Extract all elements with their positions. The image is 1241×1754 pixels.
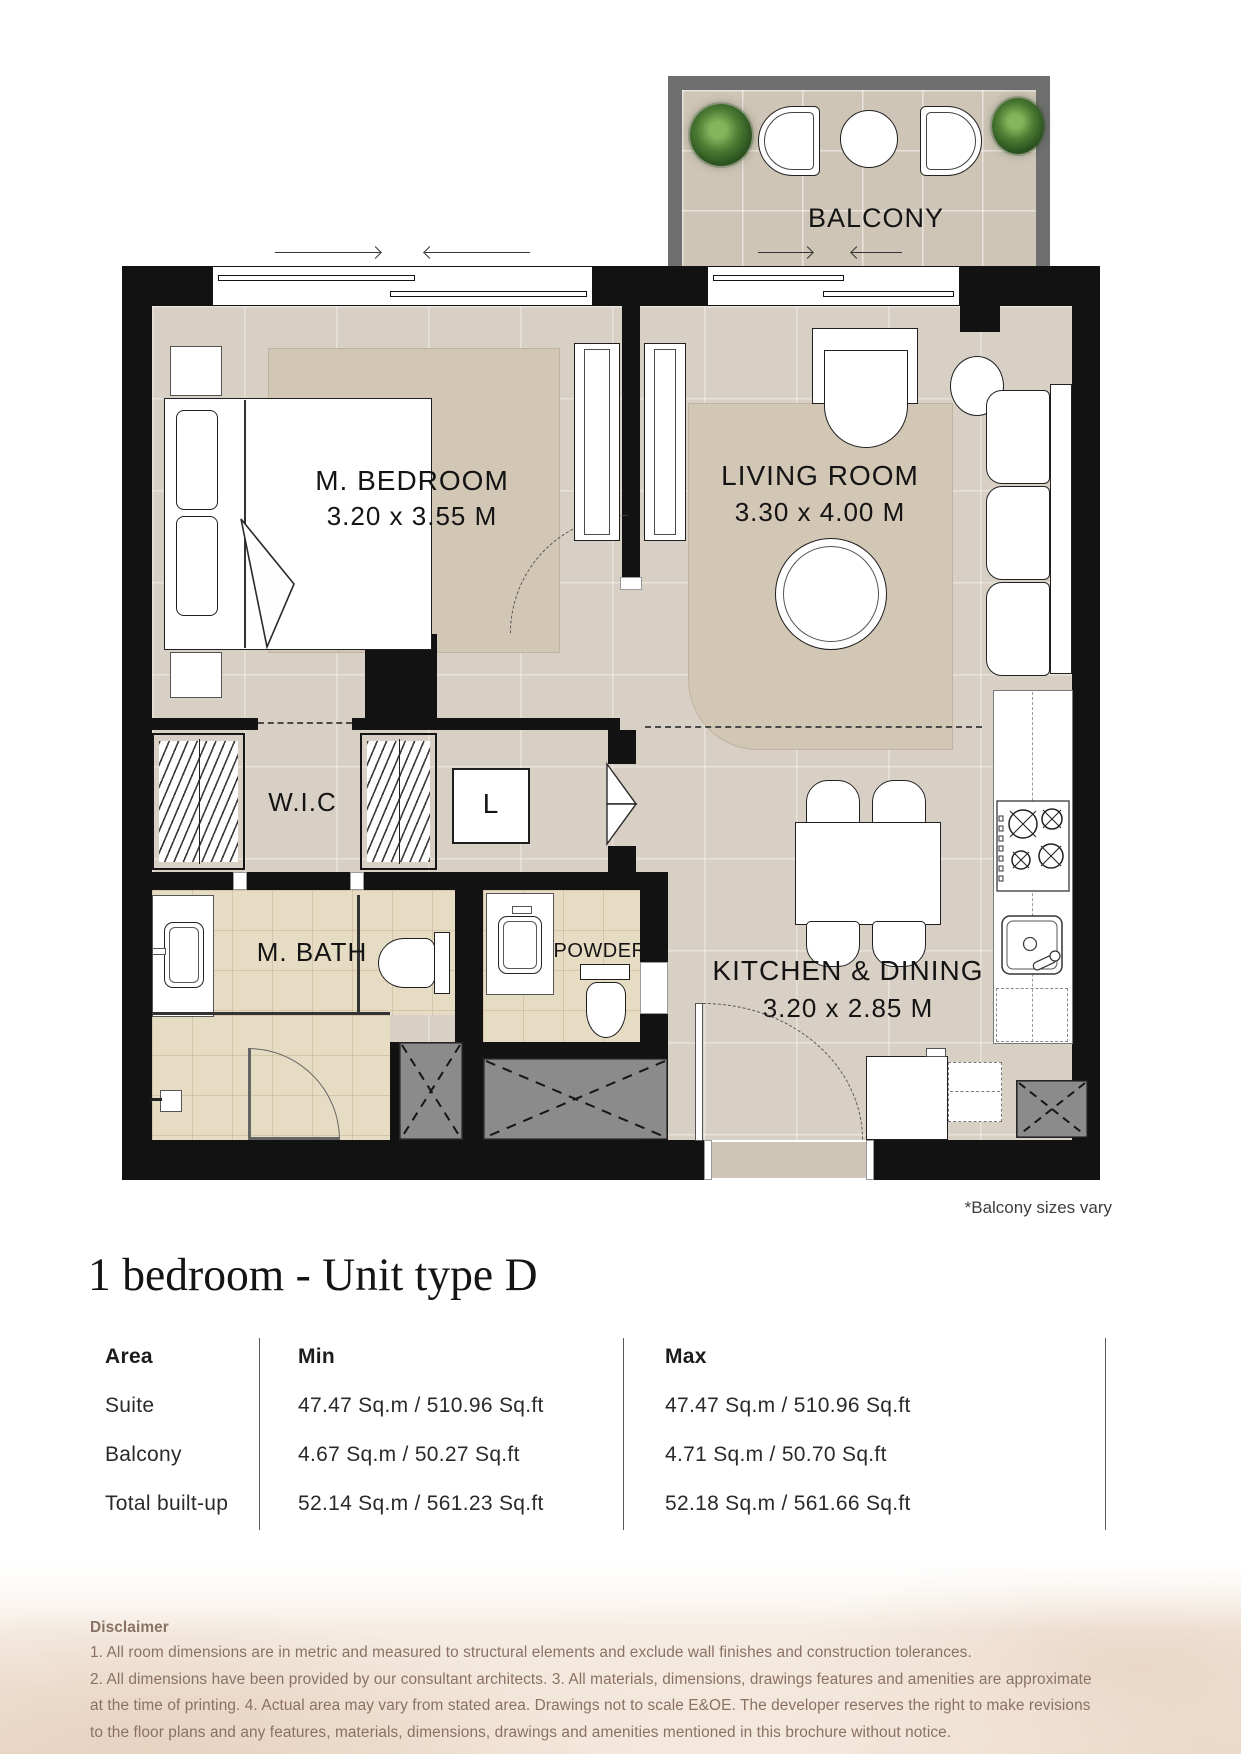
balcony-table-icon: [840, 110, 898, 168]
wall: [960, 306, 1000, 332]
col-header-max: Max: [665, 1345, 707, 1369]
disclaimer-line: to the floor plans and any features, mat…: [90, 1720, 1092, 1747]
balcony-chair-icon: [758, 106, 820, 176]
sofa-cushion-icon: [986, 390, 1050, 484]
wall: [1072, 306, 1100, 1180]
laundry-label: L: [452, 789, 530, 820]
wall: [390, 1042, 399, 1140]
disclaimer-line: at the time of printing. 4. Actual area …: [90, 1693, 1092, 1720]
wall: [455, 890, 483, 1042]
coffee-table-inner: [783, 546, 879, 642]
door-frame: [704, 1140, 712, 1180]
wardrobe-icon: [152, 733, 245, 870]
sofa-cushion-icon: [986, 486, 1050, 580]
row-max: 52.18 Sq.m / 561.66 Sq.ft: [665, 1492, 911, 1516]
sofa-cushion-icon: [986, 582, 1050, 676]
row-label: Balcony: [105, 1443, 182, 1467]
row-label: Suite: [105, 1394, 154, 1418]
pillow-icon: [176, 410, 218, 510]
balcony-wall-top: [668, 76, 1050, 90]
bedroom-dims: 3.20 x 3.55 M: [262, 502, 562, 531]
row-min: 4.67 Sq.m / 50.27 Sq.ft: [298, 1443, 520, 1467]
dining-table-icon: [795, 822, 941, 925]
wall: [352, 718, 620, 730]
wall: [152, 872, 483, 890]
wall: [483, 1042, 668, 1058]
faucet-icon: [152, 948, 166, 955]
bedroom-window: [212, 266, 593, 306]
dining-chair-icon: [872, 780, 926, 826]
service-shaft: [483, 1058, 668, 1140]
shower-arm: [150, 1098, 162, 1101]
wall: [608, 730, 636, 764]
bifold-door-icon: [604, 762, 640, 846]
window-pane: [390, 291, 587, 297]
kitchen-label: KITCHEN & DINING: [658, 956, 1038, 987]
nightstand-icon: [170, 652, 222, 698]
door-frame: [233, 872, 247, 890]
disclaimer-heading: Disclaimer: [90, 1615, 169, 1642]
window-pane: [218, 275, 415, 281]
plant-icon: [690, 104, 752, 166]
sink-icon: [498, 916, 542, 974]
kitchen-sink-icon: [1000, 914, 1064, 976]
plant-icon: [992, 98, 1044, 154]
arrow-right-icon: [275, 252, 380, 253]
row-label: Total built-up: [105, 1492, 228, 1516]
mbath-label: M. BATH: [247, 938, 377, 967]
disclaimer-text: 1. All room dimensions are in metric and…: [90, 1640, 1092, 1746]
disclaimer-line: 1. All room dimensions are in metric and…: [90, 1640, 1092, 1667]
dining-chair-icon: [806, 780, 860, 826]
wall: [608, 846, 636, 874]
wall: [148, 718, 258, 730]
service-shaft: [1016, 1080, 1088, 1138]
washer-tab: [926, 1048, 946, 1057]
table-divider: [623, 1338, 624, 1530]
wall: [122, 1140, 704, 1180]
row-min: 47.47 Sq.m / 510.96 Sq.ft: [298, 1394, 544, 1418]
balcony-wall-left: [668, 76, 682, 266]
wall: [463, 1042, 483, 1140]
fridge-space: [996, 988, 1068, 1042]
toilet-icon: [378, 938, 436, 988]
nightstand-icon: [170, 346, 222, 396]
col-header-min: Min: [298, 1345, 335, 1369]
arrow-right-icon: [758, 252, 812, 253]
bedroom-label: M. BEDROOM: [262, 466, 562, 497]
wardrobe-panel-icon: [574, 343, 620, 541]
arrow-left-icon: [852, 252, 902, 253]
toilet-icon: [586, 982, 626, 1038]
living-window: [707, 266, 960, 306]
wall: [874, 1140, 1100, 1180]
row-max: 47.47 Sq.m / 510.96 Sq.ft: [665, 1394, 911, 1418]
disclaimer-line: 2. All dimensions have been provided by …: [90, 1667, 1092, 1694]
table-divider: [259, 1338, 260, 1530]
wall: [122, 266, 212, 306]
living-label: LIVING ROOM: [660, 461, 980, 492]
balcony-wall-right: [1036, 76, 1050, 266]
door-frame: [350, 872, 364, 890]
wall: [960, 266, 1100, 306]
wardrobe-icon: [360, 733, 437, 870]
stove-icon: [996, 800, 1070, 892]
pillow-icon: [176, 516, 218, 616]
armchair-icon: [824, 350, 908, 448]
opening-dashed-line: [258, 722, 352, 724]
window-pane: [823, 291, 954, 297]
faucet-icon: [512, 906, 532, 914]
page-title: 1 bedroom - Unit type D: [88, 1248, 537, 1302]
wall: [593, 266, 707, 306]
row-max: 4.71 Sq.m / 50.70 Sq.ft: [665, 1443, 887, 1467]
wall-line: [152, 1012, 390, 1015]
powder-label: POWDER: [540, 940, 660, 962]
brochure-page: BALCONY: [0, 0, 1241, 1754]
toilet-tank: [434, 932, 450, 994]
balcony-label: BALCONY: [726, 204, 1026, 234]
washer-icon: [866, 1056, 948, 1140]
dryer-line: [950, 1091, 1000, 1092]
col-header-area: Area: [105, 1345, 153, 1369]
table-divider: [1105, 1338, 1106, 1530]
sink-icon: [164, 922, 204, 988]
balcony-note: *Balcony sizes vary: [812, 1198, 1112, 1218]
living-dims: 3.30 x 4.00 M: [660, 498, 980, 527]
window-pane: [713, 275, 844, 281]
toilet-tank: [580, 964, 630, 980]
disclaimer-band: Disclaimer 1. All room dimensions are in…: [0, 1560, 1241, 1754]
arrow-left-icon: [425, 252, 530, 253]
door-frame: [866, 1140, 874, 1180]
shower-head-icon: [160, 1090, 182, 1112]
ceiling-dashed-line: [645, 726, 982, 728]
service-shaft: [399, 1042, 463, 1140]
dryer-space: [948, 1062, 1002, 1122]
row-min: 52.14 Sq.m / 561.23 Sq.ft: [298, 1492, 544, 1516]
entry-door-leaf: [695, 1003, 703, 1141]
sofa-back: [1050, 384, 1072, 674]
blanket-fold-icon: [240, 516, 298, 650]
entry-threshold: [712, 1142, 866, 1178]
wic-label: W.I.C: [245, 788, 360, 817]
